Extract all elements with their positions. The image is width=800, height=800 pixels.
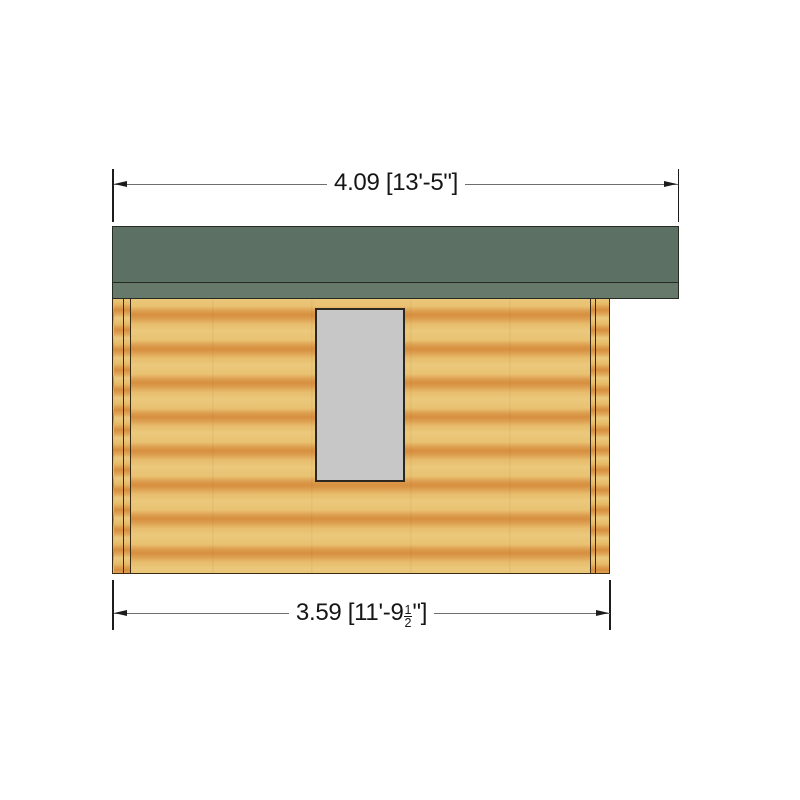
corner-joint-line-right-inner [590, 298, 591, 573]
top-dimension-label: 4.09 [13'-5"] [327, 170, 465, 196]
corner-joint-line-left-inner [130, 298, 131, 573]
corner-joint-line-right-outer [595, 298, 596, 573]
window [315, 308, 405, 482]
bottom-dimension-suffix: "] [412, 599, 427, 626]
roof-fascia [113, 282, 678, 298]
corner-log-strip-right [590, 298, 609, 573]
bottom-dimension-label: 3.59 [11'-912"] [289, 600, 434, 630]
bottom-dimension-prefix: 3.59 [11'-9 [296, 599, 404, 626]
corner-joint-line-left-outer [123, 298, 124, 573]
elevation-drawing: 4.09 [13'-5"] 3.59 [11'-912"] [0, 0, 800, 800]
roof [112, 226, 679, 299]
